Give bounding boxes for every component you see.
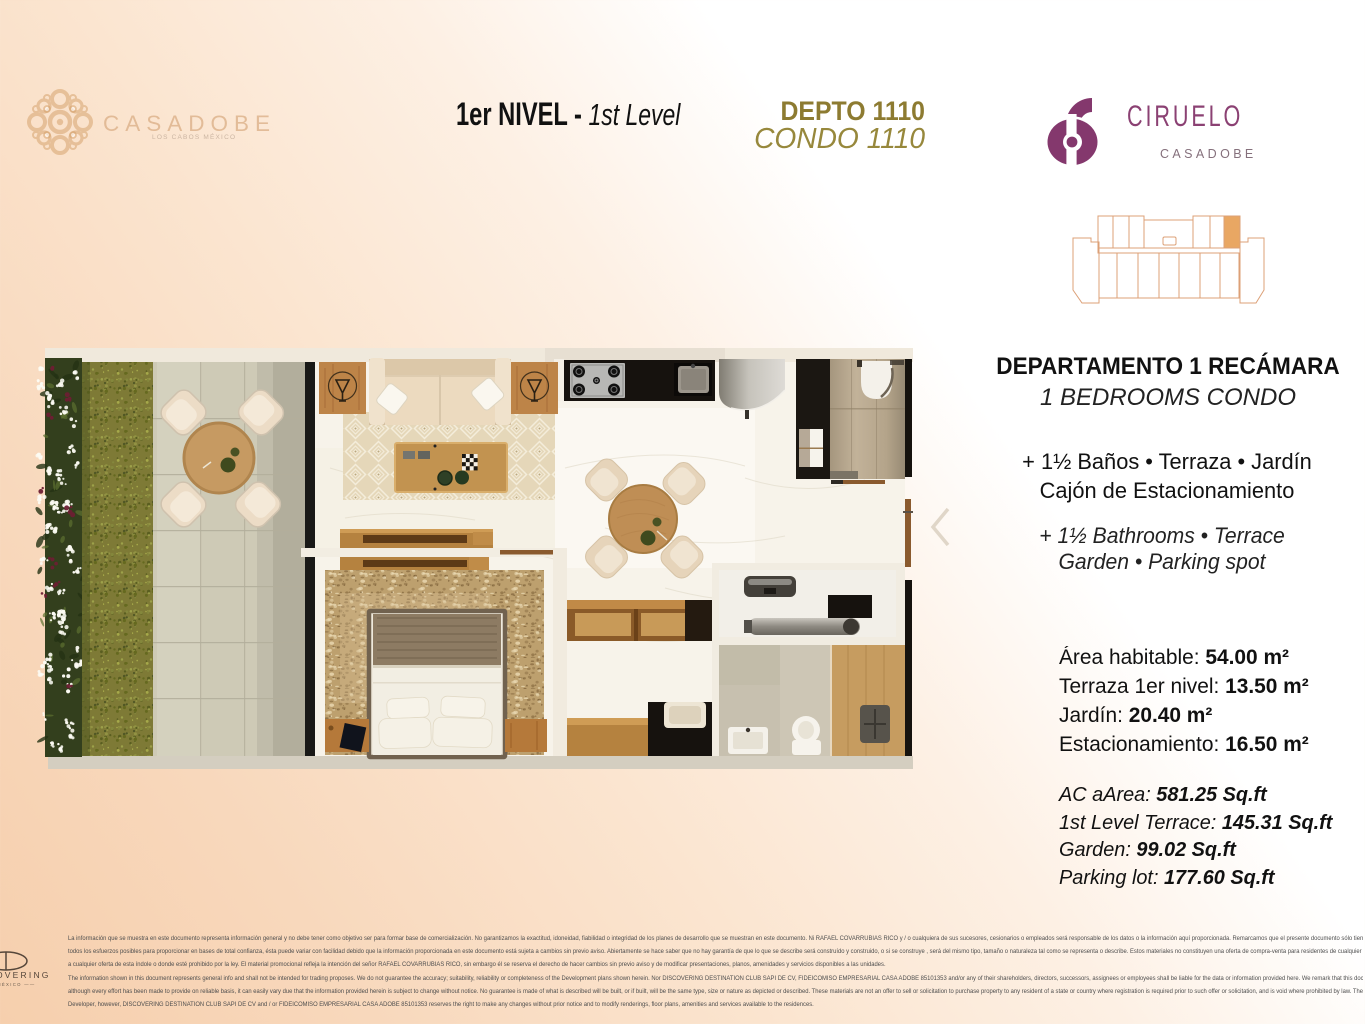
svg-text:OVERING: OVERING	[0, 970, 51, 980]
svg-text:MÉXICO ——: MÉXICO ——	[0, 982, 35, 987]
